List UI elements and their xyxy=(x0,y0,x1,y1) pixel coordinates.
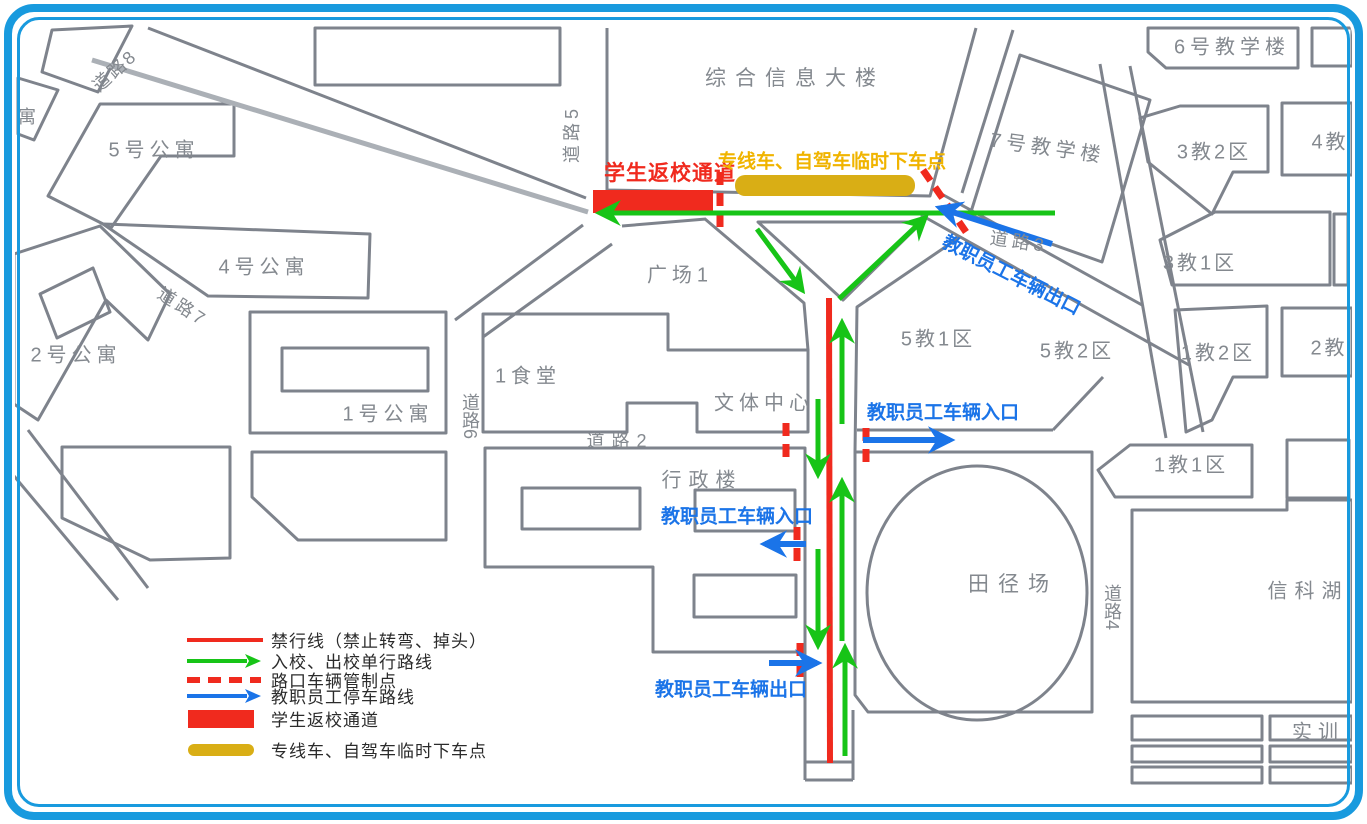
legend-row-student-channel: 学生返校通道 xyxy=(185,706,379,731)
building-label: 5号公寓 xyxy=(108,134,199,163)
building-label: 4号公寓 xyxy=(218,251,309,280)
road-label: 道路4 xyxy=(1099,584,1125,630)
gold-pill-swatch xyxy=(185,740,271,760)
building-label: 1食堂 xyxy=(495,360,561,389)
building-label: 5教2区 xyxy=(1040,335,1114,364)
building-shape xyxy=(522,488,640,529)
legend-label: 专线车、自驾车临时下车点 xyxy=(271,737,487,762)
building-label: 2号公寓 xyxy=(30,339,121,368)
building-label: 1号公寓 xyxy=(342,398,433,427)
staff-entry-e-label: 教职员工车辆入口 xyxy=(867,398,1019,425)
road-line xyxy=(148,28,586,198)
building-shape xyxy=(1334,214,1348,285)
building-label: 田径场 xyxy=(968,568,1058,598)
student-channel-label: 学生返校通道 xyxy=(604,157,736,187)
road-label: 道路6 xyxy=(457,393,483,439)
road-label: 道路5 xyxy=(558,105,584,163)
building-label: 3教2区 xyxy=(1177,136,1251,165)
campus-traffic-map: 综合信息大楼 6号教学楼 7号教学楼 3教2区 4教 3教1区 1教2区 2教 … xyxy=(0,0,1367,824)
legend-row-dropoff: 专线车、自驾车临时下车点 xyxy=(185,737,487,762)
building-shape xyxy=(485,448,805,652)
building-label: 2教 xyxy=(1310,332,1347,361)
road-line xyxy=(705,219,808,350)
no-entry-line-swatch xyxy=(185,631,271,649)
building-shape xyxy=(48,104,234,228)
building-shape xyxy=(1287,440,1349,498)
dropoff-bar xyxy=(735,175,915,196)
legend-label: 学生返校通道 xyxy=(271,706,379,731)
road-line xyxy=(1100,64,1166,438)
legend-row-staff-route: 教职员工停车路线 xyxy=(185,683,415,708)
staff-exit-s-label: 教职员工车辆出口 xyxy=(655,675,807,702)
building-shape xyxy=(1270,767,1352,783)
building-shape xyxy=(1175,306,1267,432)
road-line xyxy=(1053,377,1103,430)
red-rect-swatch xyxy=(185,708,271,730)
building-label: 5教1区 xyxy=(901,323,975,352)
building-label: 文体中心 xyxy=(714,387,814,416)
road-line xyxy=(622,219,706,226)
building-label: 实训 xyxy=(1292,716,1344,745)
road-line xyxy=(455,225,583,320)
building-shape xyxy=(1132,746,1262,762)
building-shape xyxy=(1132,767,1262,783)
building-shape xyxy=(40,268,110,338)
road-line xyxy=(483,244,612,337)
building-label: 综合信息大楼 xyxy=(705,62,885,92)
building-shape xyxy=(252,452,446,540)
road-label: 道路2 xyxy=(586,427,653,453)
building-label: 4教 xyxy=(1311,126,1348,155)
control-point-dash xyxy=(923,170,966,232)
student-channel-bar xyxy=(593,190,713,213)
legend-label: 教职员工停车路线 xyxy=(271,683,415,708)
building-label: 1教1区 xyxy=(1154,449,1228,478)
blue-arrow-swatch xyxy=(185,686,271,706)
staff-entry-w-label: 教职员工车辆入口 xyxy=(661,502,813,529)
building-label: 行政楼 xyxy=(662,464,743,493)
building-shape xyxy=(694,575,796,617)
building-label: 信科湖 xyxy=(1268,575,1349,604)
building-label: 1教2区 xyxy=(1181,337,1255,366)
building-shape xyxy=(1270,746,1352,762)
dropoff-label: 专线车、自驾车临时下车点 xyxy=(718,147,946,174)
building-label: 6号教学楼 xyxy=(1174,31,1290,60)
no-entry-line xyxy=(829,298,830,763)
building-shape xyxy=(1132,716,1262,740)
building-shape xyxy=(62,447,230,560)
building-shape xyxy=(1312,28,1352,66)
building-shape xyxy=(315,28,560,85)
building-shape xyxy=(282,348,428,391)
building-label: 寓 xyxy=(18,103,36,129)
building-label: 广场1 xyxy=(647,259,713,288)
route-arrow xyxy=(839,218,925,299)
building-label: 3教1区 xyxy=(1163,247,1237,276)
